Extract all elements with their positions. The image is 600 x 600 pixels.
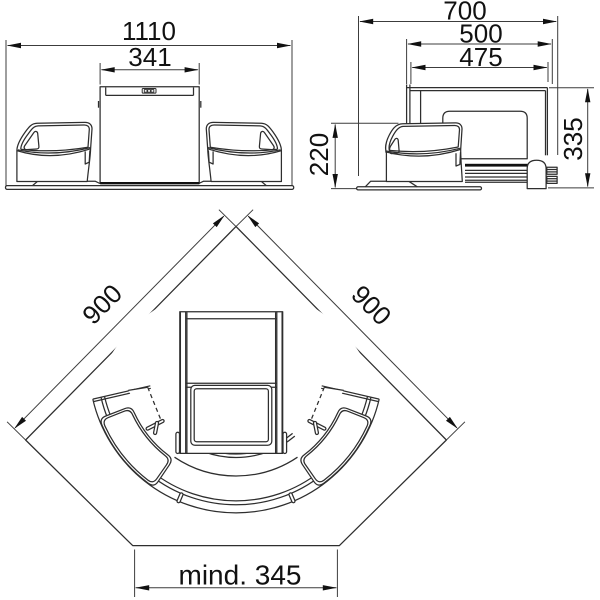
svg-text:220: 220 — [304, 133, 334, 176]
svg-text:475: 475 — [459, 42, 502, 72]
svg-text:341: 341 — [128, 42, 171, 72]
svg-text:mind. 345: mind. 345 — [179, 560, 302, 591]
svg-text:335: 335 — [558, 117, 588, 160]
